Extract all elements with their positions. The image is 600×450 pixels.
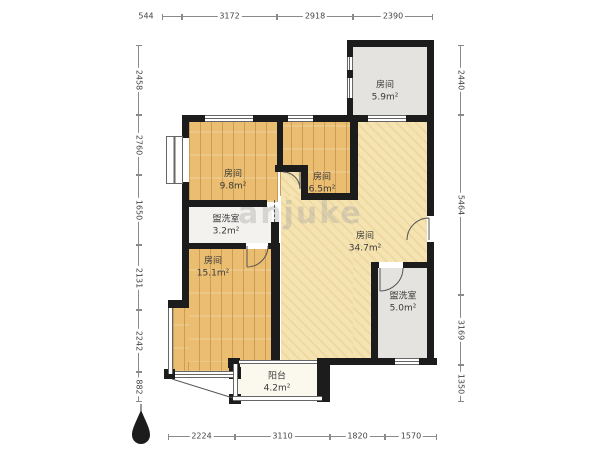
room-label-bedroom-b: 房间 6.5m² [309, 172, 336, 195]
window-bed-a-top [205, 115, 253, 122]
dim-bottom-1820: 1820 [330, 436, 385, 437]
room-label-balcony: 阳台 4.2m² [264, 371, 291, 394]
wall-bottom-right [317, 358, 437, 365]
dim-top-544: 544 [162, 16, 182, 17]
room-label-bedroom-d: 房间 15.1m² [197, 256, 229, 279]
floor-living-corridor [281, 172, 302, 198]
wall-room-c-top [347, 40, 433, 47]
door-gap-washroom-b [379, 262, 403, 268]
room-label-washroom-b: 盥洗室 5.0m² [389, 291, 416, 314]
room-area: 6.5m² [309, 184, 336, 196]
wall-bed-d-right [271, 249, 280, 364]
dim-bottom-3110: 3110 [235, 436, 330, 437]
wall-right-outer [427, 40, 434, 365]
dim-bottom-1570: 1570 [385, 436, 437, 437]
room-name: 房间 [372, 80, 399, 92]
wall-bed-b-door-h [275, 165, 303, 172]
wall-bed-b-right [350, 122, 358, 200]
balcony-rail-bottom [233, 396, 322, 401]
door-gap-entry [427, 216, 434, 242]
dim-top-2918: 2918 [277, 16, 353, 17]
room-name: 房间 [197, 256, 229, 268]
room-name: 房间 [349, 231, 381, 243]
room-name: 房间 [220, 169, 247, 181]
north-compass-icon [122, 400, 162, 450]
window-bed-b-top [288, 115, 313, 122]
dim-left-2458: 2458 [138, 45, 139, 115]
room-label-room-c: 房间 5.9m² [372, 80, 399, 103]
room-area: 9.8m² [220, 181, 247, 193]
dim-right-1350: 1350 [460, 365, 461, 402]
dim-top-3172: 3172 [182, 16, 277, 17]
wall-step-left [168, 300, 189, 308]
window-room-c-left-1 [347, 57, 353, 70]
window-bed-d-bottom [175, 371, 233, 378]
dim-right-3169: 3169 [460, 295, 461, 365]
bay-window-gap [182, 138, 189, 182]
dim-left-882: 882 [138, 372, 139, 402]
room-name: 盥洗室 [212, 214, 239, 226]
room-label-bedroom-a: 房间 9.8m² [220, 169, 247, 192]
dim-top-2390: 2390 [353, 16, 433, 17]
room-area: 3.2m² [212, 226, 239, 238]
window-washroom-b-bottom [395, 358, 419, 365]
door-gap-bed-d [246, 243, 268, 249]
window-room-c-left-2 [347, 78, 353, 98]
room-area: 5.9m² [372, 92, 399, 104]
room-label-living-room: 房间 34.7m² [349, 231, 381, 254]
room-name: 房间 [309, 172, 336, 184]
dim-left-2242: 2242 [138, 310, 139, 372]
room-area: 34.7m² [349, 243, 381, 255]
opening-dashed [274, 200, 275, 222]
room-name: 阳台 [264, 371, 291, 383]
dim-right-5464: 5464 [460, 115, 461, 295]
dim-left-2760: 2760 [138, 115, 139, 175]
window-left-lower [168, 308, 173, 374]
room-name: 盥洗室 [389, 291, 416, 303]
bay-window-left [166, 136, 183, 184]
room-label-washroom-a: 盥洗室 3.2m² [212, 214, 239, 237]
wall-bed-a-bottom [186, 200, 267, 207]
room-area: 4.2m² [264, 383, 291, 395]
dim-bottom-2224: 2224 [168, 436, 235, 437]
floor-bedroom-d-ext [173, 308, 189, 372]
balcony-rail-left [233, 364, 238, 397]
room-area: 15.1m² [197, 268, 229, 280]
balcony-door-slider [239, 360, 317, 364]
floor-plan: anjuke [0, 0, 600, 450]
wall-washroom-b-left [371, 262, 378, 358]
dim-left-2131: 2131 [138, 245, 139, 310]
window-room-c-bottom [368, 115, 406, 122]
dim-left-1650: 1650 [138, 175, 139, 245]
room-area: 5.0m² [389, 303, 416, 315]
dim-right-2440: 2440 [460, 45, 461, 115]
wall-bed-b-door-v [301, 165, 308, 200]
bay-diagonal-line [172, 379, 233, 398]
wall-bed-a-b-divider [277, 122, 283, 170]
